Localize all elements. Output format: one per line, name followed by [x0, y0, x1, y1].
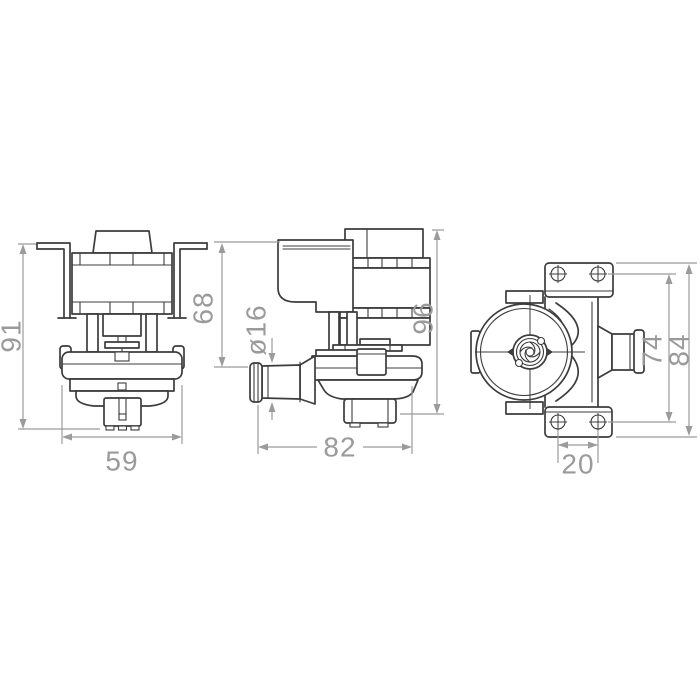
technical-drawing-page: 91 59 [0, 0, 700, 700]
dimension-label: 68 [188, 291, 219, 324]
front-view: 91 59 [0, 231, 207, 477]
motor-body [72, 253, 172, 314]
outlet-pipe-rear [598, 326, 612, 378]
rear-view: 74 84 20 [471, 263, 697, 480]
coil-housing [278, 240, 353, 312]
pump-bowl-side [318, 380, 418, 399]
dimension-label: 96 [408, 301, 439, 334]
dimension-label: 84 [664, 333, 695, 366]
motor-cap-side [345, 229, 423, 258]
dimension-label: 59 [105, 446, 138, 477]
dimension-label: 82 [323, 432, 356, 463]
impeller-plate [105, 342, 139, 348]
motor-cap [93, 231, 152, 253]
bracket-left [37, 243, 70, 318]
dimension-label: 20 [561, 449, 594, 480]
dimension-label: ø16 [241, 304, 272, 355]
side-view: 68 ø16 96 82 [188, 229, 445, 463]
valve-box [357, 349, 386, 375]
dimension-label: 91 [0, 319, 27, 352]
pump-technical-drawing: 91 59 [0, 0, 700, 700]
connector-box [104, 398, 141, 426]
